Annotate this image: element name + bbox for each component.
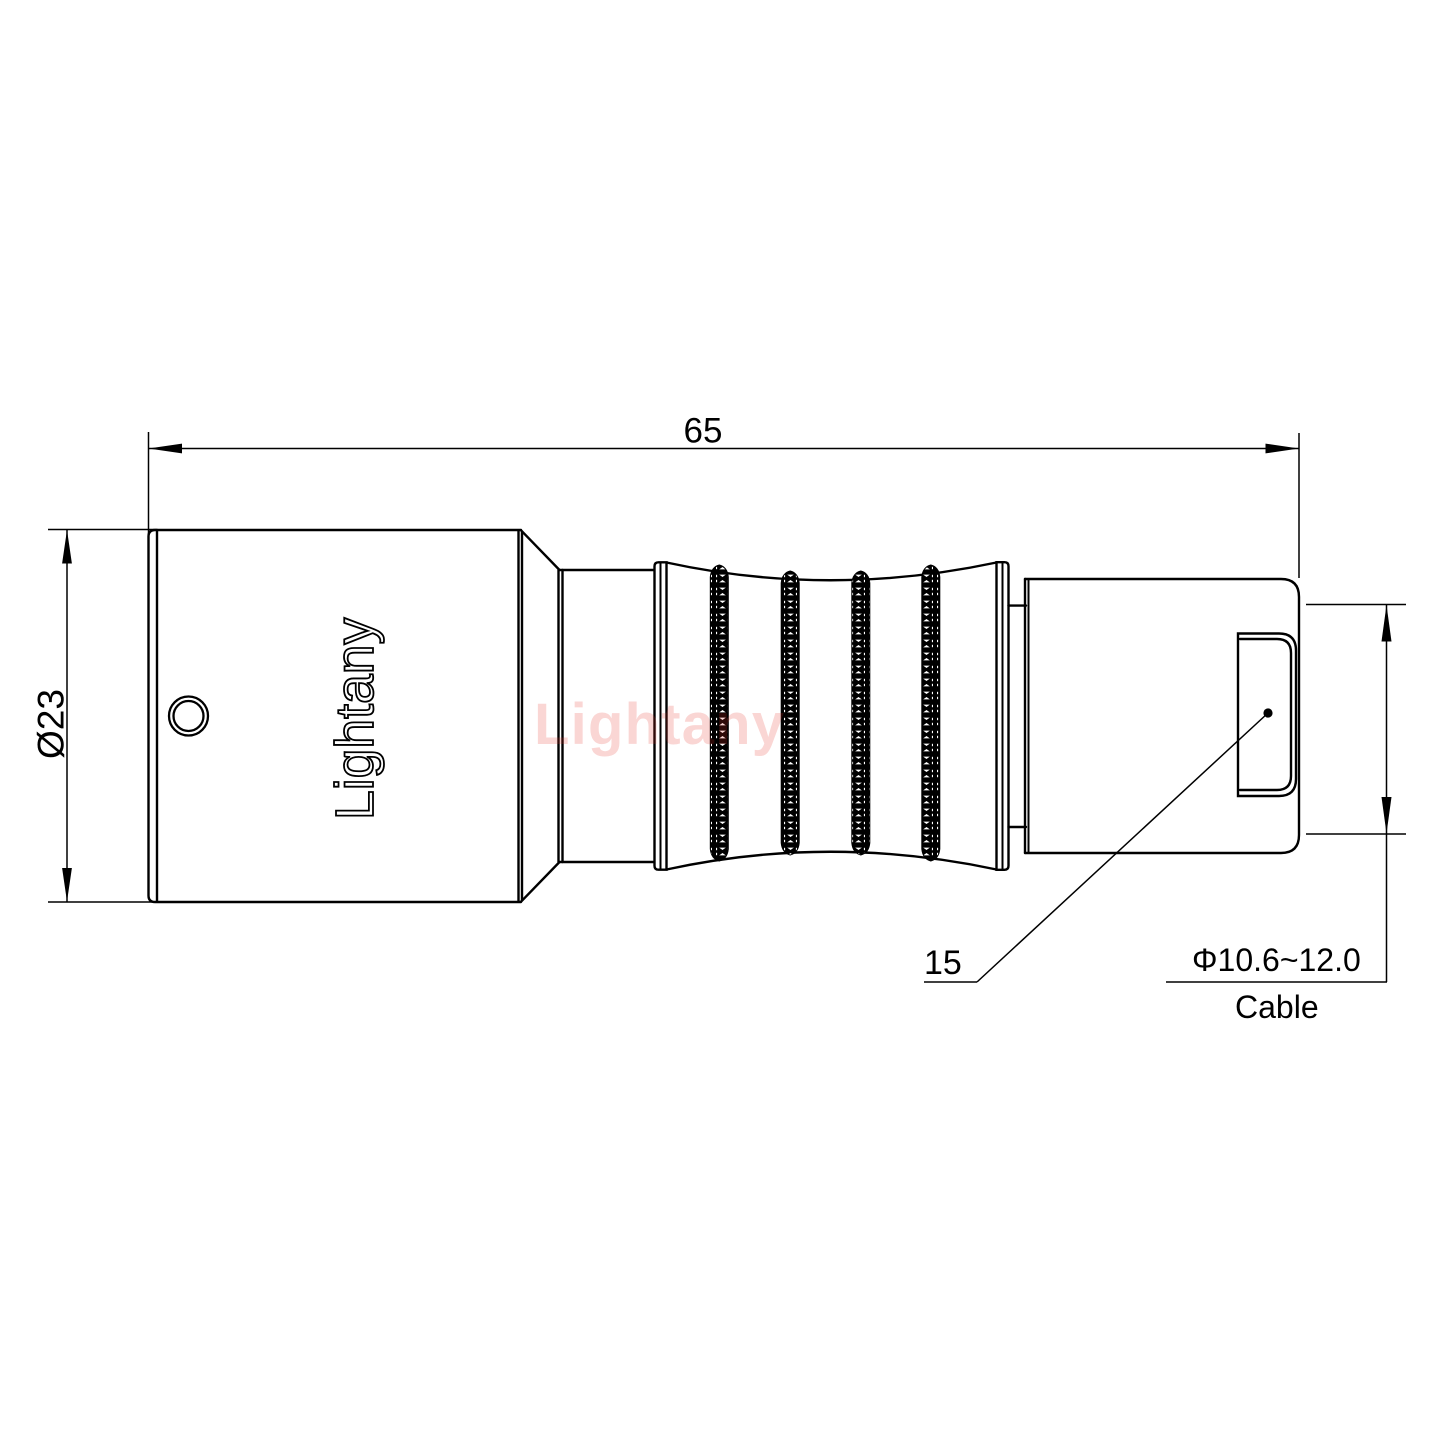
- svg-text:Lightany: Lightany: [326, 617, 385, 820]
- svg-text:Cable: Cable: [1235, 989, 1319, 1025]
- svg-text:Ø23: Ø23: [31, 689, 72, 759]
- svg-text:Φ10.6~12.0: Φ10.6~12.0: [1192, 942, 1361, 978]
- svg-text:15: 15: [924, 944, 962, 982]
- svg-text:Lightany: Lightany: [534, 692, 785, 757]
- svg-text:65: 65: [684, 412, 723, 451]
